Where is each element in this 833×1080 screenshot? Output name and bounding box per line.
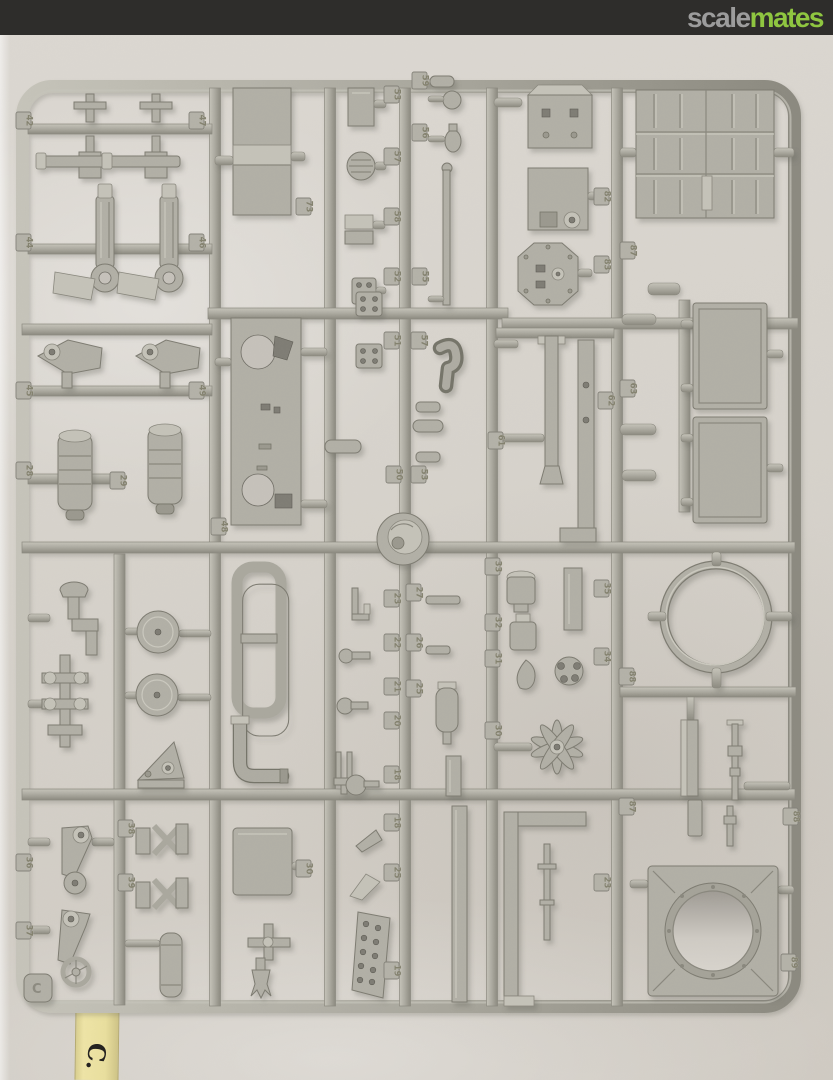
- logo-scale-text: scale: [687, 2, 750, 33]
- scalemates-logo: scalemates: [687, 3, 823, 33]
- photo-of-model-kit-sprue: scalemates C.: [0, 0, 833, 1080]
- photo-grain-overlay: [0, 35, 833, 1080]
- logo-mates-text: mates: [750, 2, 823, 33]
- sprue-photo-graphic: C: [0, 0, 833, 1080]
- watermark-bar: scalemates: [0, 0, 833, 35]
